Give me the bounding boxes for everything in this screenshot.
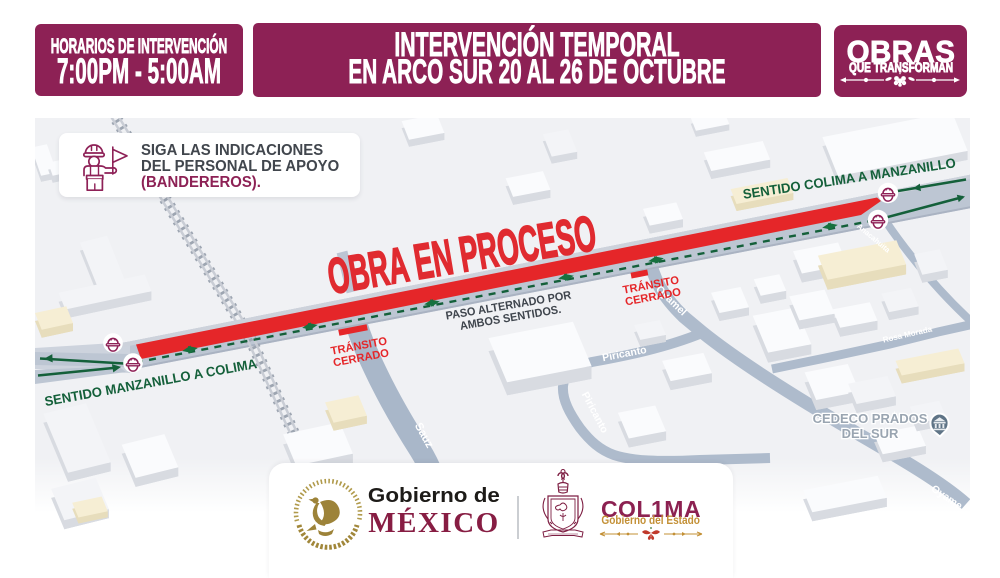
svg-text:CEDECO PRADOS: CEDECO PRADOS bbox=[813, 411, 928, 426]
svg-text:DEL SUR: DEL SUR bbox=[842, 426, 899, 441]
